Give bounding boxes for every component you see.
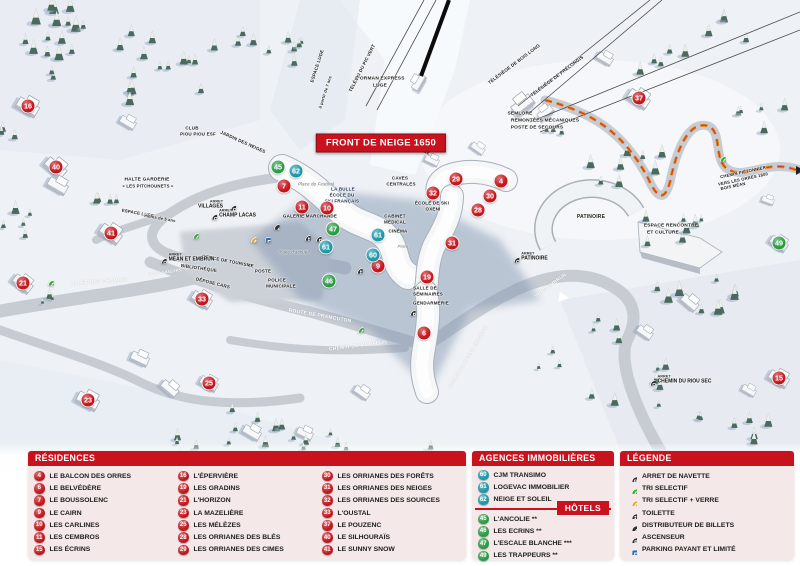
legende-item: ASCENSEUR xyxy=(626,531,794,543)
legend-item: 23LA MAZELIÈRE xyxy=(178,507,322,519)
map-label: SALLE DE xyxy=(413,286,437,291)
marker-badge: 15 xyxy=(34,545,45,556)
map-label: LA BULLE xyxy=(331,187,355,192)
wc-icon xyxy=(300,230,311,241)
recycle-green-icon xyxy=(626,483,637,494)
marker-residence-19: 19 xyxy=(421,271,434,284)
legend-item-label: LES ORRIANES DES FORÊTS xyxy=(338,473,434,480)
marker-badge: 28 xyxy=(178,532,189,543)
marker-badge: 11 xyxy=(34,532,45,543)
legend-item: 47L'ESCALE BLANCHE *** xyxy=(478,537,614,549)
legend-item: 31LES ORRIANES DES NEIGES xyxy=(322,482,466,494)
legende-item-label: TRI SELECTIF + VERRE xyxy=(642,497,719,504)
marker-badge: 31 xyxy=(322,483,333,494)
legend-item-label: L'OUSTAL xyxy=(338,510,371,517)
marker-badge: 7 xyxy=(34,495,45,506)
marker-badge: 49 xyxy=(478,551,489,562)
legend-item-label: LES ORRIANES DES BLÉS xyxy=(194,534,281,541)
elevator-icon xyxy=(311,231,322,242)
legend-item-label: LE BOUSSOLENC xyxy=(50,497,109,504)
bus-stop-icon xyxy=(156,253,167,264)
parking-icon xyxy=(260,232,271,243)
legende-item: DISTRIBUTEUR DE BILLETS xyxy=(626,519,794,531)
bus-stop-champ-lacas: ARRETCHAMP LACAS xyxy=(206,209,256,220)
legend-item: 28LES ORRIANES DES BLÉS xyxy=(178,531,322,543)
marker-badge: 16 xyxy=(178,471,189,482)
elevator-icon xyxy=(626,532,637,543)
map-label: HALTE GARDERIE xyxy=(124,178,169,183)
bus-stop-icon xyxy=(508,252,519,263)
legend-item: 40LE SILHOURAÏS xyxy=(322,531,466,543)
legend-item: 29LES ORRIANES DES CIMES xyxy=(178,544,322,556)
front-de-neige-banner: FRONT DE NEIGE 1650 xyxy=(316,134,446,153)
legende-box: LÉGENDE ARRET DE NAVETTETRI SELECTIFTRI … xyxy=(620,451,794,560)
marker-residence-15: 15 xyxy=(773,372,786,385)
marker-residence-32: 32 xyxy=(427,187,440,200)
marker-badge: 46 xyxy=(478,526,489,537)
map-label: SEMLORE xyxy=(507,112,532,117)
marker-residence-40: 40 xyxy=(50,161,63,174)
marker-residence-30: 30 xyxy=(484,190,497,203)
bus-stop-name: MEAN ET EMBRUN xyxy=(169,257,215,263)
legend-item: 6LE BELVÉDÈRE xyxy=(34,482,178,494)
legend-item-label: LES CEMBROS xyxy=(50,534,100,541)
marker-badge: 6 xyxy=(34,483,45,494)
marker-residence-4: 4 xyxy=(495,175,508,188)
legend-panel: RÉSIDENCES 4LE BALCON DES ORRES6LE BELVÉ… xyxy=(0,444,800,566)
legend-item: 19LES GRADINS xyxy=(178,482,322,494)
legende-item-label: TOILETTE xyxy=(642,510,675,517)
legende-item-label: DISTRIBUTEUR DE BILLETS xyxy=(642,522,734,529)
legend-item-label: LES GRADINS xyxy=(194,485,240,492)
legend-item-label: LES ORRIANES DES NEIGES xyxy=(338,485,432,492)
euro-icon xyxy=(269,219,280,230)
legend-item-label: LE CAIRN xyxy=(50,510,82,517)
legend-item: 32LES ORRIANES DES SOURCES xyxy=(322,495,466,507)
residences-box: RÉSIDENCES 4LE BALCON DES ORRES6LE BELVÉ… xyxy=(28,451,466,560)
map-label: ET CULTURE xyxy=(647,231,679,236)
legend-item: 10LES CARLINES xyxy=(34,519,178,531)
map-label: CAVES xyxy=(392,176,408,181)
hotels-list: 45L'ANCOLIE **46LES ECRINS **47L'ESCALE … xyxy=(472,510,614,562)
recycle-green-icon xyxy=(43,275,54,286)
legend-item: 11LES CEMBROS xyxy=(34,531,178,543)
bus-stop-label: ARRETPATINOIRE xyxy=(521,252,547,262)
bus-stop-mean-et-embrun: ARRETMEAN ET EMBRUN xyxy=(156,253,215,264)
wc-icon xyxy=(352,263,363,274)
legend-item: 7LE BOUSSOLENC xyxy=(34,495,178,507)
marker-badge: 30 xyxy=(322,471,333,482)
legend-item-label: LA MAZELIÈRE xyxy=(194,510,244,517)
legend-item-label: L'ANCOLIE ** xyxy=(494,516,538,523)
marker-badge: 37 xyxy=(322,520,333,531)
legend-item-label: CJM TRANSIMO xyxy=(494,472,547,479)
agences-box: AGENCES IMMOBILIÈRES 60CJM TRANSIMO61LOG… xyxy=(472,451,614,560)
map-label: ESPACE RENCONTRE xyxy=(644,224,698,229)
marker-badge: 29 xyxy=(178,545,189,556)
marker-badge: 47 xyxy=(478,538,489,549)
resort-map: ♻ € P. xyxy=(0,0,800,566)
map-label: OXENI xyxy=(425,207,440,212)
legend-item-label: LES ORRIANES DES SOURCES xyxy=(338,497,440,504)
marker-residence-21: 21 xyxy=(17,277,30,290)
legend-item-label: LES TRAPPEURS ** xyxy=(494,552,558,559)
residences-title: RÉSIDENCES xyxy=(28,451,466,466)
marker-residence-16: 16 xyxy=(22,100,35,113)
legende-title: LÉGENDE xyxy=(620,451,794,466)
bus-icon xyxy=(626,471,637,482)
recycle-green-icon xyxy=(188,228,199,239)
legend-item: 49LES TRAPPEURS ** xyxy=(478,550,614,562)
marker-badge: 19 xyxy=(178,483,189,494)
residences-column: 4LE BALCON DES ORRES6LE BELVÉDÈRE7LE BOU… xyxy=(34,470,178,556)
legend-item: 37LE POUZENC xyxy=(322,519,466,531)
legend-item-label: LE BALCON DES ORRES xyxy=(50,473,132,480)
map-label: « LES PITCHOUNETS » xyxy=(122,184,173,189)
euro-icon xyxy=(626,520,637,531)
legend-item: 33L'OUSTAL xyxy=(322,507,466,519)
marker-residence-41: 41 xyxy=(105,227,118,240)
marker-badge: 62 xyxy=(478,494,489,505)
legend-item: 60CJM TRANSIMO xyxy=(478,469,614,481)
map-label: GALERIE MARCHANDE xyxy=(283,214,337,219)
legend-item-label: LES MÉLÈZES xyxy=(194,522,241,529)
map-label: CLUB xyxy=(185,126,198,131)
residences-column: 16L'ÉPERVIÈRE19LES GRADINS21L'HORIZON23L… xyxy=(178,470,322,556)
map-label: Place du Festival xyxy=(298,182,334,187)
bus-stop-label: ARRETCHEMIN DU RIOU SEC xyxy=(658,375,712,385)
map-label: CENTRALES xyxy=(386,182,415,187)
legend-item-label: L'HORIZON xyxy=(194,497,231,504)
legende-item: TRI SELECTIF + VERRE xyxy=(626,495,794,507)
map-label: ÉCOLE DU xyxy=(330,193,355,198)
legend-item-label: LES ECRINS ** xyxy=(494,528,542,535)
map-label: GENDARMERIE xyxy=(413,301,449,306)
marker-agency-60: 60 xyxy=(367,249,380,262)
marker-agency-62: 62 xyxy=(290,165,303,178)
wc-icon xyxy=(626,508,637,519)
marker-badge: 32 xyxy=(322,495,333,506)
legend-item: 25LES MÉLÈZES xyxy=(178,519,322,531)
legend-item-label: LE BELVÉDÈRE xyxy=(50,485,102,492)
marker-hotel-45: 45 xyxy=(272,161,285,174)
map-label: POSTE DE SECOURS xyxy=(511,126,564,131)
recycle-green-icon xyxy=(353,322,364,333)
legend-item: 15LES ÉCRINS xyxy=(34,544,178,556)
marker-badge: 21 xyxy=(178,495,189,506)
recycle-yellow-icon xyxy=(626,495,637,506)
recycle-green-icon xyxy=(715,151,726,162)
bus-stop-label: ARRETMEAN ET EMBRUN xyxy=(169,253,215,263)
legende-item-label: ASCENSEUR xyxy=(642,534,685,541)
legende-item: ARRET DE NAVETTE xyxy=(626,470,794,482)
legende-item-label: ARRET DE NAVETTE xyxy=(642,473,710,480)
marker-badge: 61 xyxy=(478,482,489,493)
hotels-divider: HÔTELS xyxy=(475,508,611,510)
marker-residence-28: 28 xyxy=(472,204,485,217)
map-label: L'ORMAN EXPRESS xyxy=(355,77,404,82)
marker-badge: 10 xyxy=(34,520,45,531)
bus-stop-icon xyxy=(645,375,656,386)
legend-item-label: LE POUZENC xyxy=(338,522,382,529)
map-label: MUNICIPALE xyxy=(266,284,296,289)
legend-item: 30LES ORRIANES DES FORÊTS xyxy=(322,470,466,482)
map-label: CINÉMA xyxy=(389,229,408,234)
marker-agency-61: 61 xyxy=(372,229,385,242)
marker-residence-11: 11 xyxy=(296,201,309,214)
legend-item-label: L'ÉPERVIÈRE xyxy=(194,473,239,480)
legend-item: 61LOGEVAC IMMOBILIER xyxy=(478,481,614,493)
legende-item: TOILETTE xyxy=(626,507,794,519)
map-label: PIOU PIOU ESF xyxy=(180,132,216,137)
map-label: Place xyxy=(397,244,408,249)
legend-item: 46LES ECRINS ** xyxy=(478,525,614,537)
legend-item-label: LE SUNNY SNOW xyxy=(338,546,395,553)
bus-stop-name: PATINOIRE xyxy=(521,256,547,262)
legende-item-label: TRI SELECTIF xyxy=(642,485,688,492)
bus-stop-chemin-du-riou-sec: ARRETCHEMIN DU RIOU SEC xyxy=(645,375,712,386)
legende-item-label: PARKING PAYANT ET LIMITÉ xyxy=(642,546,736,553)
map-label: MÉDICAL xyxy=(384,220,406,225)
map-label: POSTE xyxy=(255,269,271,274)
marker-hotel-46: 46 xyxy=(323,275,336,288)
marker-agency-61: 61 xyxy=(320,241,333,254)
marker-badge: 41 xyxy=(322,545,333,556)
marker-badge: 25 xyxy=(178,520,189,531)
agences-title: AGENCES IMMOBILIÈRES xyxy=(472,451,614,466)
legend-item-label: NEIGE ET SOLEIL xyxy=(494,496,552,503)
legend-item: 21L'HORIZON xyxy=(178,495,322,507)
map-label: ÉCOLE DE SKI xyxy=(415,201,449,206)
map-label: POLICE xyxy=(268,278,286,283)
map-label: Place d'accueil xyxy=(278,250,310,255)
marker-residence-7: 7 xyxy=(278,180,291,193)
bus-stop-label: ARRETCHAMP LACAS xyxy=(219,209,256,219)
legende-item: TRI SELECTIF xyxy=(626,482,794,494)
legend-item-label: LOGEVAC IMMOBILIER xyxy=(494,484,570,491)
legende-item: PARKING PAYANT ET LIMITÉ xyxy=(626,544,794,556)
bus-stop-name: CHEMIN DU RIOU SEC xyxy=(658,379,712,385)
bus-stop-patinoire: ARRETPATINOIRE xyxy=(508,252,547,263)
marker-residence-6: 6 xyxy=(418,327,431,340)
marker-residence-37: 37 xyxy=(633,92,646,105)
residences-column: 30LES ORRIANES DES FORÊTS31LES ORRIANES … xyxy=(322,470,466,556)
marker-hotel-47: 47 xyxy=(327,223,340,236)
legend-item-label: LE SILHOURAÏS xyxy=(338,534,391,541)
hotels-title: HÔTELS xyxy=(557,501,609,515)
marker-badge: 60 xyxy=(478,470,489,481)
legend-item-label: LES ORRIANES DES CIMES xyxy=(194,546,284,553)
bus-stop-name: CHAMP LACAS xyxy=(219,213,256,219)
marker-badge: 4 xyxy=(34,471,45,482)
marker-badge: 9 xyxy=(34,508,45,519)
map-label: CABINET xyxy=(384,214,405,219)
marker-hotel-49: 49 xyxy=(773,237,786,250)
marker-residence-23: 23 xyxy=(82,394,95,407)
legend-item-label: L'ESCALE BLANCHE *** xyxy=(494,540,572,547)
map-label: PATINOIRE xyxy=(577,214,605,220)
residences-list: 4LE BALCON DES ORRES6LE BELVÉDÈRE7LE BOU… xyxy=(28,466,466,556)
legend-item-label: LES CARLINES xyxy=(50,522,100,529)
legend-item: 16L'ÉPERVIÈRE xyxy=(178,470,322,482)
recycle-yellow-icon xyxy=(246,232,257,243)
marker-badge: 23 xyxy=(178,508,189,519)
marker-residence-31: 31 xyxy=(446,237,459,250)
legende-list: ARRET DE NAVETTETRI SELECTIFTRI SELECTIF… xyxy=(620,466,794,556)
marker-badge: 33 xyxy=(322,508,333,519)
map-label: SÉMINAIRES xyxy=(413,292,443,297)
legend-item: 4LE BALCON DES ORRES xyxy=(34,470,178,482)
legend-item: 41LE SUNNY SNOW xyxy=(322,544,466,556)
marker-residence-25: 25 xyxy=(203,377,216,390)
marker-residence-33: 33 xyxy=(196,293,209,306)
map-label: LUGE xyxy=(373,84,387,89)
parking-icon xyxy=(626,544,637,555)
legend-item: 9LE CAIRN xyxy=(34,507,178,519)
marker-badge: 40 xyxy=(322,532,333,543)
bus-stop-icon xyxy=(206,209,217,220)
marker-residence-10: 10 xyxy=(321,202,334,215)
legend-item-label: LES ÉCRINS xyxy=(50,546,91,553)
marker-residence-29: 29 xyxy=(450,173,463,186)
elevator-icon xyxy=(405,305,416,316)
marker-badge: 45 xyxy=(478,514,489,525)
map-label: REMONTÉES MÉCANIQUES xyxy=(511,119,579,124)
